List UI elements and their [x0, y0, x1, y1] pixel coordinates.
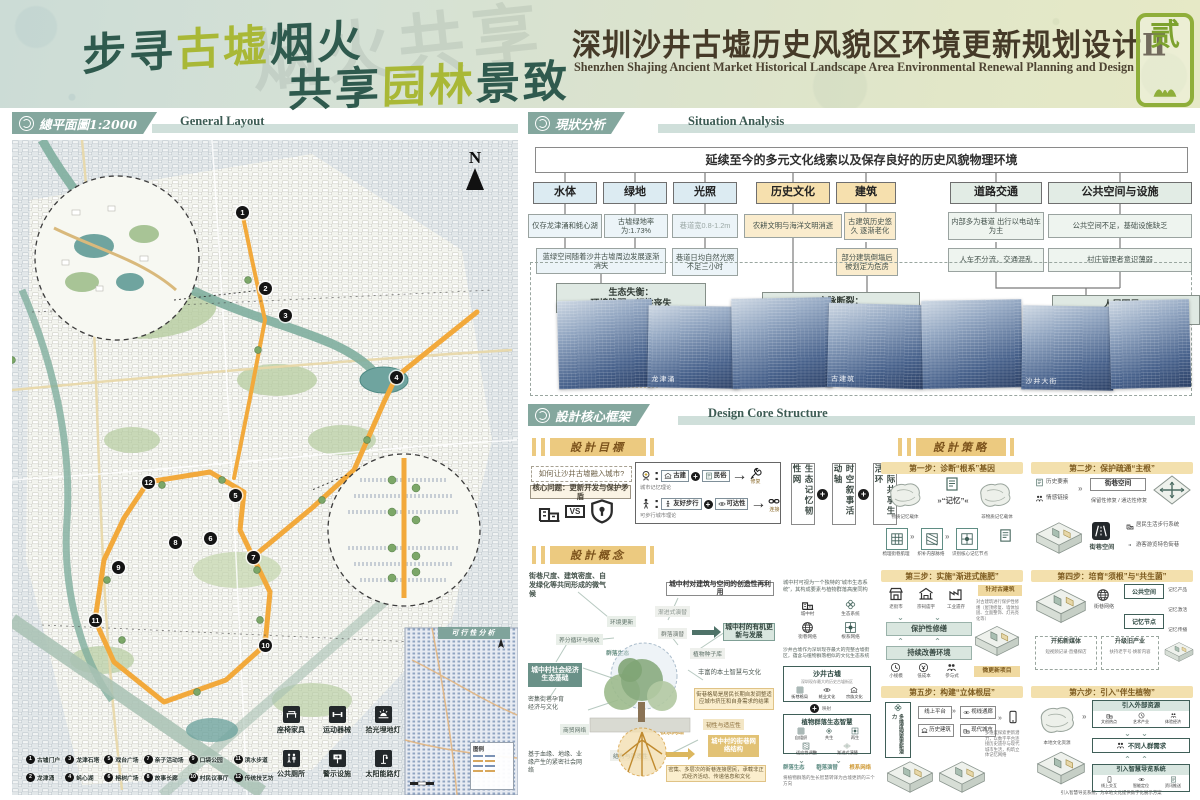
- shajing-title: 沙井古墟: [786, 669, 868, 679]
- facility-label: 座椅家具: [277, 725, 305, 735]
- strategy3-note: 对古建筑进行保护性修缮（屋顶修复、墙体加固、立面整饰、灯光亮化等）: [976, 599, 1023, 621]
- label: 历史要素: [1046, 479, 1068, 486]
- output-label: 群落生态: [783, 765, 805, 772]
- plus-icon: [858, 489, 869, 500]
- feasibility-inset-title: 可行性分析: [438, 627, 510, 639]
- map-marker: 12: [142, 476, 155, 489]
- strategy3-icon2-label: 宗祠庙宇: [912, 604, 940, 610]
- site-photo: [557, 299, 654, 389]
- item-label: 共生: [825, 735, 833, 741]
- iso-block-icon: [1035, 586, 1087, 626]
- item: 线上交互: [1101, 776, 1117, 789]
- strategy3-band1: 保护性修缮: [886, 622, 972, 636]
- memory-theory-icon: [640, 470, 652, 482]
- sketch-blob-icon: [885, 478, 925, 512]
- chip-label: 民俗: [714, 472, 727, 480]
- output-label: 根系网络: [849, 765, 871, 772]
- goal-pill-narrative: 时空叙事活动轴: [832, 463, 856, 525]
- legend-item: 10村民议事厅: [189, 771, 229, 784]
- small-scale-icon: [890, 662, 901, 673]
- globe-icon: [1096, 588, 1110, 602]
- box-title: 不同人群需求: [1128, 741, 1166, 750]
- repair1: 保留性修复: [1091, 498, 1117, 504]
- legend-label: 戏台广场: [115, 755, 138, 764]
- sub-history: 农耕文明与海洋文明消逝: [744, 214, 842, 238]
- flower-icon: [893, 703, 903, 712]
- strategy1-header: 第一步：诊断“根系”基因: [881, 462, 1023, 474]
- seal-logo: 贰: [1136, 13, 1194, 107]
- section-chip: 設計核心框架: [528, 404, 650, 426]
- tab-bar: [532, 438, 536, 456]
- strategy3-icon1-label: 老街市: [882, 604, 910, 610]
- concept-env-renew: 环境更新: [607, 616, 636, 627]
- legend-item: 1古墟门户: [26, 753, 60, 766]
- strategy3-note-title: 针对古建筑: [978, 585, 1022, 596]
- sketch-blob-icon: [1035, 702, 1079, 738]
- strategy2-history: 历史要素: [1035, 478, 1068, 487]
- strategy1-left-label: 物质记忆载体: [881, 514, 929, 520]
- iso-block-icon: [1164, 640, 1194, 664]
- legend-label: 滨水步道: [245, 755, 268, 764]
- iso-block-icon: [886, 760, 934, 794]
- village-icon: [801, 598, 814, 611]
- legend-num: 5: [104, 755, 113, 764]
- item-label: 街巷格局: [791, 694, 808, 700]
- concept-organic-renewal: 城中村的有机更新与发展: [723, 623, 775, 641]
- legend-item: 6榕树广场: [104, 771, 138, 784]
- iso-block-icon: [1035, 520, 1083, 556]
- strategy3-tag3: 参与式: [940, 673, 964, 679]
- diagram-label: 街巷网络: [798, 634, 816, 640]
- label: 情感链接: [1046, 495, 1068, 502]
- strategy4-out1: 记忆产品: [1168, 588, 1187, 594]
- concept-local-wisdom: 丰富的本土智慧与文化: [698, 669, 774, 677]
- slogan2-b: 园林: [382, 59, 477, 113]
- output-label: 群落演替: [816, 765, 838, 772]
- box-sub: 扶持老字号·焕新内容: [1104, 649, 1156, 655]
- facility-label: 拾光埋地灯: [366, 725, 401, 735]
- site-photo: [1109, 299, 1191, 389]
- section-title-cn: 設計核心框架: [555, 406, 630, 425]
- crossing-axes-icon: [1152, 474, 1192, 506]
- label: 视线通廊: [971, 709, 993, 716]
- succession-icon: [843, 742, 851, 750]
- photo-caption: 龙津涌: [651, 374, 675, 384]
- home-icon: [1126, 522, 1134, 530]
- legend-item: 2龙津涌: [26, 771, 60, 784]
- map-marker: 8: [169, 536, 182, 549]
- label: 历史建筑: [929, 727, 951, 734]
- theory2-label: 可步行城市理论: [640, 513, 676, 520]
- box-items: 文创热点 艺术产业 体验经济: [1093, 712, 1189, 725]
- item-label: 蚝业文化: [819, 694, 836, 700]
- facility-item: 拾光埋地灯: [360, 706, 406, 750]
- strategy5-note: 多维度探索更新潜力，以数字平台连接历史遗存与现代城市生活，构筑立体记忆网络: [985, 730, 1023, 758]
- item: 文创热点: [1101, 712, 1117, 725]
- legend-label: 口袋公园: [200, 755, 223, 764]
- gym-icon: [329, 706, 346, 723]
- industrial-heritage-icon: [948, 586, 964, 602]
- facility-item: 太阳能路灯: [360, 750, 406, 794]
- category-green: 绿地: [603, 182, 667, 204]
- street-pattern-icon: [796, 686, 804, 694]
- site-photo: [731, 297, 833, 389]
- phone-icon: [1006, 710, 1020, 724]
- item-label: 体验经济: [1165, 719, 1181, 725]
- box-items: 线上交互 智能定位 资讯推送: [1093, 776, 1189, 789]
- strategy2-bullet2: 游客游览特色街巷: [1126, 542, 1179, 550]
- connect-result: 连接: [768, 495, 780, 513]
- legend-num: 10: [189, 773, 198, 782]
- oyster-culture-icon: [823, 686, 831, 694]
- box-title: 开拓新媒体: [1038, 639, 1094, 647]
- doc-icon: [944, 476, 960, 492]
- push-icon: [1170, 776, 1177, 783]
- sidebar-intro: 城中村可视为一个独特的“城市生态系统”，其构成要素与植物群落高度同构: [783, 580, 875, 594]
- concept-street-pattern: 街巷格局是居民长期自发调整适应城市挤压和自身需求的结果: [694, 688, 774, 710]
- site-photo: [921, 299, 1023, 389]
- label: 游客游览特色街巷: [1136, 542, 1179, 549]
- tab-bar: [541, 438, 545, 456]
- map-marker: 1: [236, 206, 249, 219]
- tab-bar: [1010, 438, 1014, 456]
- strategy4-network-label: 街巷网络: [1088, 604, 1120, 611]
- strategy1-step1: 梳理街巷肌理: [879, 551, 913, 557]
- shell-icon: [535, 408, 550, 423]
- strategy5-online: 线上平台: [918, 706, 952, 719]
- item: 智能定位: [1133, 776, 1149, 789]
- ground-light-icon: [375, 706, 392, 723]
- strategy2-street-space2: 街巷空间: [1084, 544, 1120, 552]
- strategy5-header: 第五步：构建“立体根层”: [881, 686, 1023, 698]
- tab-bar: [650, 438, 654, 456]
- road-icon: [1092, 522, 1110, 540]
- map-marker: 5: [229, 489, 242, 502]
- concept-resilience: 韧性与适应性: [703, 719, 744, 730]
- strategy6-people-box: 不同人群需求: [1092, 738, 1190, 753]
- item-label: 自组织: [795, 735, 808, 741]
- photo-caption: 沙井大街: [1025, 376, 1057, 387]
- strategy3-icon3-label: 工业遗存: [942, 604, 970, 610]
- facility-item: 运动器械: [314, 706, 360, 750]
- sub-traffic: 内部多为巷道 出行以电动车为主: [948, 212, 1044, 240]
- legend-label: 蚝心湖: [76, 773, 93, 782]
- box-title: 引入外部资源: [1093, 701, 1189, 711]
- item-label: 再生: [851, 735, 859, 741]
- wrench-icon: [750, 467, 762, 479]
- plus-icon: [817, 489, 828, 500]
- item: 宗族文化: [846, 686, 863, 700]
- tab-bar: [898, 438, 902, 456]
- legend-num: 4: [65, 773, 74, 782]
- diagram-label: 根系网络: [841, 634, 859, 640]
- network-mend-icon: [921, 528, 943, 550]
- section-chip: 總平面圖1:2000: [12, 112, 157, 134]
- plus-icon: [704, 500, 713, 509]
- step-separator: [1078, 484, 1082, 494]
- symbiosis-icon: [825, 727, 833, 735]
- inset-legend-title: 图例: [473, 745, 511, 753]
- facility-label: 公共厕所: [277, 769, 305, 779]
- sub-green: 古墟绿地率为:1.73%: [604, 214, 668, 238]
- legend-num: 2: [26, 773, 35, 782]
- sidebar-plant-wisdom-box: 植物群落生态智慧 自组织 共生 再生 适应性调整 渐进式演替: [783, 714, 871, 754]
- shield-lock-icon: [589, 498, 615, 524]
- item: 蚝业文化: [819, 686, 836, 700]
- item: 体验经济: [1165, 712, 1181, 725]
- situation-top-box: 延续至今的多元文化线索以及保存良好的历史风貌物理环境: [535, 147, 1188, 173]
- strategy2-header: 第二步：保护疏通“主根”: [1031, 462, 1193, 474]
- chip-folklore: 民俗: [702, 470, 730, 482]
- diagram-cell: 生态系统: [829, 598, 872, 617]
- strategy4-public-space: 公共空间: [1124, 584, 1164, 599]
- repair2: 通达性修复: [1121, 498, 1147, 504]
- map-marker: 7: [247, 551, 260, 564]
- legend-num: 3: [65, 755, 74, 764]
- legend-num: 12: [234, 773, 243, 782]
- concept-creative-reuse: 城中村对建筑与空间的创造性再利用: [666, 582, 774, 596]
- step-separator: [945, 532, 949, 542]
- interaction-icon: [1106, 776, 1113, 783]
- ecosystem-icon: [844, 598, 857, 611]
- item: 共生: [825, 727, 833, 741]
- legend-item: 3龙津石塔: [65, 753, 99, 766]
- sub-building: 古建筑历史悠久 逐渐老化: [844, 212, 896, 240]
- diagram-cell: 根系网络: [829, 621, 872, 640]
- legend-label: 龙津涌: [37, 773, 54, 782]
- strategy3-band2: 持续改善环境: [886, 646, 972, 660]
- map-marker: 3: [279, 309, 292, 322]
- diagram-cell: 城中村: [786, 598, 829, 617]
- goals-question: 如何让沙井古墟融入城市?: [531, 466, 632, 482]
- building-icon: [537, 500, 561, 524]
- strategy4-header: 第四步：培育“须根”与“共生菌”: [1031, 570, 1193, 582]
- strategy5-sight: 视线通廊: [960, 706, 996, 719]
- map-marker: 4: [390, 371, 403, 384]
- north-arrow-icon: [466, 168, 484, 190]
- clan-culture-icon: [850, 686, 858, 694]
- site-photo: 沙井大街: [1021, 305, 1114, 391]
- legend-label: 榕树广场: [115, 773, 138, 782]
- item-label: 线上交互: [1101, 783, 1117, 789]
- inset-legend-row: [473, 768, 511, 773]
- walk-theory-icon: [640, 498, 652, 510]
- vs-box: VS: [565, 505, 585, 518]
- theory-row-memory: : 古建 民俗 → 修复: [640, 466, 762, 486]
- strategy3-tag1: 小规模: [884, 673, 908, 679]
- legend-item: 8故事长廊: [144, 771, 184, 784]
- adaptation-icon: [802, 742, 810, 750]
- inset-legend: 图例: [470, 742, 514, 790]
- shell-icon: [19, 116, 34, 131]
- street-network-icon: [801, 621, 814, 634]
- slogan1-a: 步寻: [82, 25, 176, 81]
- map-marker: 11: [89, 614, 102, 627]
- concept-community-succession: 群落演替: [658, 628, 687, 639]
- legend-item: 4蚝心湖: [65, 771, 99, 784]
- shajing-items: 街巷格局 蚝业文化 宗族文化: [786, 686, 868, 700]
- tab-design-strategy: 設計策略: [916, 438, 1006, 456]
- strategy1-right-label: 非物质记忆载体: [972, 514, 1022, 520]
- box-label: 多维度探索更新潜力: [891, 714, 905, 757]
- category-building: 建筑: [836, 182, 896, 204]
- legend-num: 11: [234, 755, 243, 764]
- street-lamp-icon: [375, 750, 392, 767]
- arrow-right: [692, 630, 714, 635]
- category-history: 历史文化: [756, 182, 830, 204]
- legend-num: 6: [104, 773, 113, 782]
- goal-pill-ecology: 生态记忆韧性网: [791, 463, 815, 525]
- strategy4-old-industry: 升级旧产业 扶持老字号·焕新内容: [1101, 636, 1159, 670]
- strategy2-street-space: 街巷空间: [1090, 478, 1146, 491]
- section-header-general-layout: 總平面圖1:2000 General Layout: [12, 112, 518, 134]
- label: 居民生活步行系统: [1136, 522, 1179, 529]
- chip-ancient-building: 古建: [661, 470, 689, 482]
- strategy4-new-media: 开拓新媒体 短视频记录·直播探店: [1035, 636, 1097, 670]
- plant-wisdom-title: 植物群落生态智慧: [786, 717, 868, 726]
- site-photo: 古建筑: [827, 303, 925, 389]
- strategy3-tag2: 低成本: [912, 673, 936, 679]
- repair-result: 修复: [750, 467, 762, 485]
- building-icon: [963, 727, 970, 734]
- section-title-en: General Layout: [180, 114, 264, 129]
- chip-label: 可达性: [727, 500, 746, 508]
- people-icon: [1035, 494, 1044, 503]
- diagram-label: 城中村: [801, 611, 815, 617]
- slogan2-a: 共享: [288, 63, 383, 117]
- concept-dense-streets: 密集街巷孕育经济与文化: [528, 697, 568, 713]
- box-sub: 短视频记录·直播探店: [1038, 649, 1094, 655]
- facility-legend: 座椅家具 运动器械 拾光埋地灯 公共厕所 警示设施 太阳能路灯: [268, 706, 406, 794]
- plant-items-row2: 适应性调整 渐进式演替: [786, 742, 868, 756]
- sidebar-shajing-box: 沙井古墟 深圳现存最大的历史古墟街区 街巷格局 蚝业文化 宗族文化: [783, 666, 871, 702]
- strategy6-guide-box: 引入智慧导览系统 线上交互 智能定位 资讯推送: [1092, 764, 1190, 792]
- strategy1-step2: 织补内部脉络: [914, 551, 948, 557]
- section-title-en: Design Core Structure: [708, 406, 828, 421]
- facility-item: 警示设施: [314, 750, 360, 794]
- sub-public: 公共空间不足，基础设施缺乏: [1048, 214, 1192, 238]
- title-cn: 深圳沙井古墟历史风貌区环境更新规划设计Ⅱ: [572, 21, 1167, 66]
- concept-tree-illustration: [570, 640, 700, 788]
- link-icon: [768, 495, 780, 507]
- art-icon: [1138, 712, 1145, 719]
- legend-num: 7: [144, 755, 153, 764]
- strategy4-out2: 记忆激活: [1168, 608, 1187, 614]
- item-label: 宗族文化: [846, 694, 863, 700]
- site-photo: 龙津涌: [647, 305, 740, 389]
- sidebar-note: 沙井古墟作为深圳现存最大的完整古墟街区，蕴含与植物群落相似的文化生态系统: [783, 648, 875, 660]
- strategy5-left-box: 多维度探索更新潜力: [885, 702, 911, 758]
- item-label: 艺术产业: [1133, 719, 1149, 725]
- slogan1-b: 古墟: [176, 21, 270, 77]
- low-cost-icon: [918, 662, 929, 673]
- facility-label: 运动器械: [323, 725, 351, 735]
- plus-icon: [691, 472, 700, 481]
- iso-block-icon: [938, 760, 986, 794]
- step-separator: [998, 714, 1002, 723]
- diagram-cell: 街巷网络: [786, 621, 829, 640]
- conclusion-title: 生态失衡：: [608, 287, 653, 298]
- category-light: 光照: [673, 182, 737, 204]
- legend-label: 亲子活动场: [155, 755, 184, 764]
- section-header-situation: 現狀分析 Situation Analysis: [528, 112, 1195, 134]
- section-title-cn: 總平面圖1:2000: [39, 114, 137, 133]
- toilet-icon: [283, 750, 300, 767]
- theory1-label: 城市记忆理论: [640, 485, 671, 492]
- diagram-label: 生态系统: [841, 611, 859, 617]
- map-marker: 9: [112, 561, 125, 574]
- strategy1-step3: 识别核心记忆节点: [950, 551, 990, 557]
- sign-icon: [329, 750, 346, 767]
- street-fabric-icon: [886, 528, 908, 550]
- concept-microclimate: 街巷尺度、建筑密度、自发绿化等共同形成的微气候: [529, 572, 611, 599]
- general-layout-map: [12, 140, 518, 795]
- goals-theory-box: : 古建 民俗 → 修复 城市记忆理论 : 友好步行 可达性 → 连接 可步行城…: [635, 462, 781, 524]
- old-market-icon: [888, 586, 904, 602]
- facility-label: 警示设施: [323, 769, 351, 779]
- item-label: 智能定位: [1133, 783, 1149, 789]
- poster-header: 烟火共享 步寻古墟烟火 共享园林景致 深圳沙井古墟历史风貌区环境更新规划设计Ⅱ …: [0, 0, 1200, 108]
- legend-num: 8: [144, 773, 153, 782]
- plus-icon: [810, 704, 819, 713]
- iso-block-icon: [974, 624, 1020, 658]
- strategy6-note: 引入智慧导览系统，为本地文化提供数字化展示方案: [1031, 790, 1191, 796]
- chip-walk-friendly: 友好步行: [661, 498, 701, 510]
- plant-items-row1: 自组织 共生 再生: [786, 727, 868, 741]
- item: 资讯推送: [1165, 776, 1181, 789]
- result-label: 修复: [751, 479, 761, 485]
- section-header-design-core: 設計核心框架 Design Core Structure: [528, 404, 1195, 426]
- iso-block-icon: [1036, 750, 1086, 786]
- result-label: 连接: [769, 507, 779, 513]
- strategy6-source-label: 本地文化资源: [1031, 740, 1083, 746]
- legend-item: 9口袋公园: [189, 753, 229, 766]
- photo-caption: 古建筑: [831, 374, 855, 385]
- legend-num: 1: [26, 755, 35, 764]
- root-network-icon: [844, 621, 857, 634]
- item: 适应性调整: [796, 742, 817, 756]
- memory-node-icon: [956, 528, 978, 550]
- facility-item: 座椅家具: [268, 706, 314, 750]
- self-organize-icon: [797, 727, 805, 735]
- step-separator: [952, 707, 956, 716]
- seal-character: 贰: [1150, 21, 1180, 51]
- sidebar-mapping-diagram: 城中村 生态系统 街巷网络 根系网络: [786, 598, 872, 640]
- section-chip: 現狀分析: [528, 112, 625, 134]
- facility-label: 太阳能路灯: [366, 769, 401, 779]
- eye-icon: [963, 709, 970, 716]
- ancestral-hall-icon: [918, 586, 934, 602]
- chip-accessibility: 可达性: [715, 498, 749, 510]
- map-marker: 2: [259, 282, 272, 295]
- sub-light: 巷道宽0.8-1.2m: [672, 214, 738, 238]
- step-separator: [910, 532, 914, 542]
- strategy3-micro-tag: 微更新项目: [974, 666, 1020, 677]
- category-public-space: 公共空间与设施: [1048, 182, 1192, 204]
- legend-label: 故事长廊: [155, 773, 178, 782]
- item: 街巷格局: [791, 686, 808, 700]
- strategy6-external-box: 引入外部资源 文创热点 艺术产业 体验经济: [1092, 700, 1190, 728]
- legend-item: 7亲子活动场: [144, 753, 184, 766]
- flag-icon: [1126, 542, 1134, 550]
- theory-row-walkable: : 友好步行 可达性 → 连接: [640, 494, 780, 514]
- sidebar-note2: 将植物群落的生长智慧转译为古墟更新的三个方向: [783, 775, 875, 787]
- strategy4-memory-node: 记忆节点: [1124, 614, 1164, 629]
- bench-icon: [283, 706, 300, 723]
- section-title-cn: 現狀分析: [555, 114, 605, 133]
- box-title: 升级旧产业: [1104, 639, 1156, 647]
- legend-num: 9: [189, 755, 198, 764]
